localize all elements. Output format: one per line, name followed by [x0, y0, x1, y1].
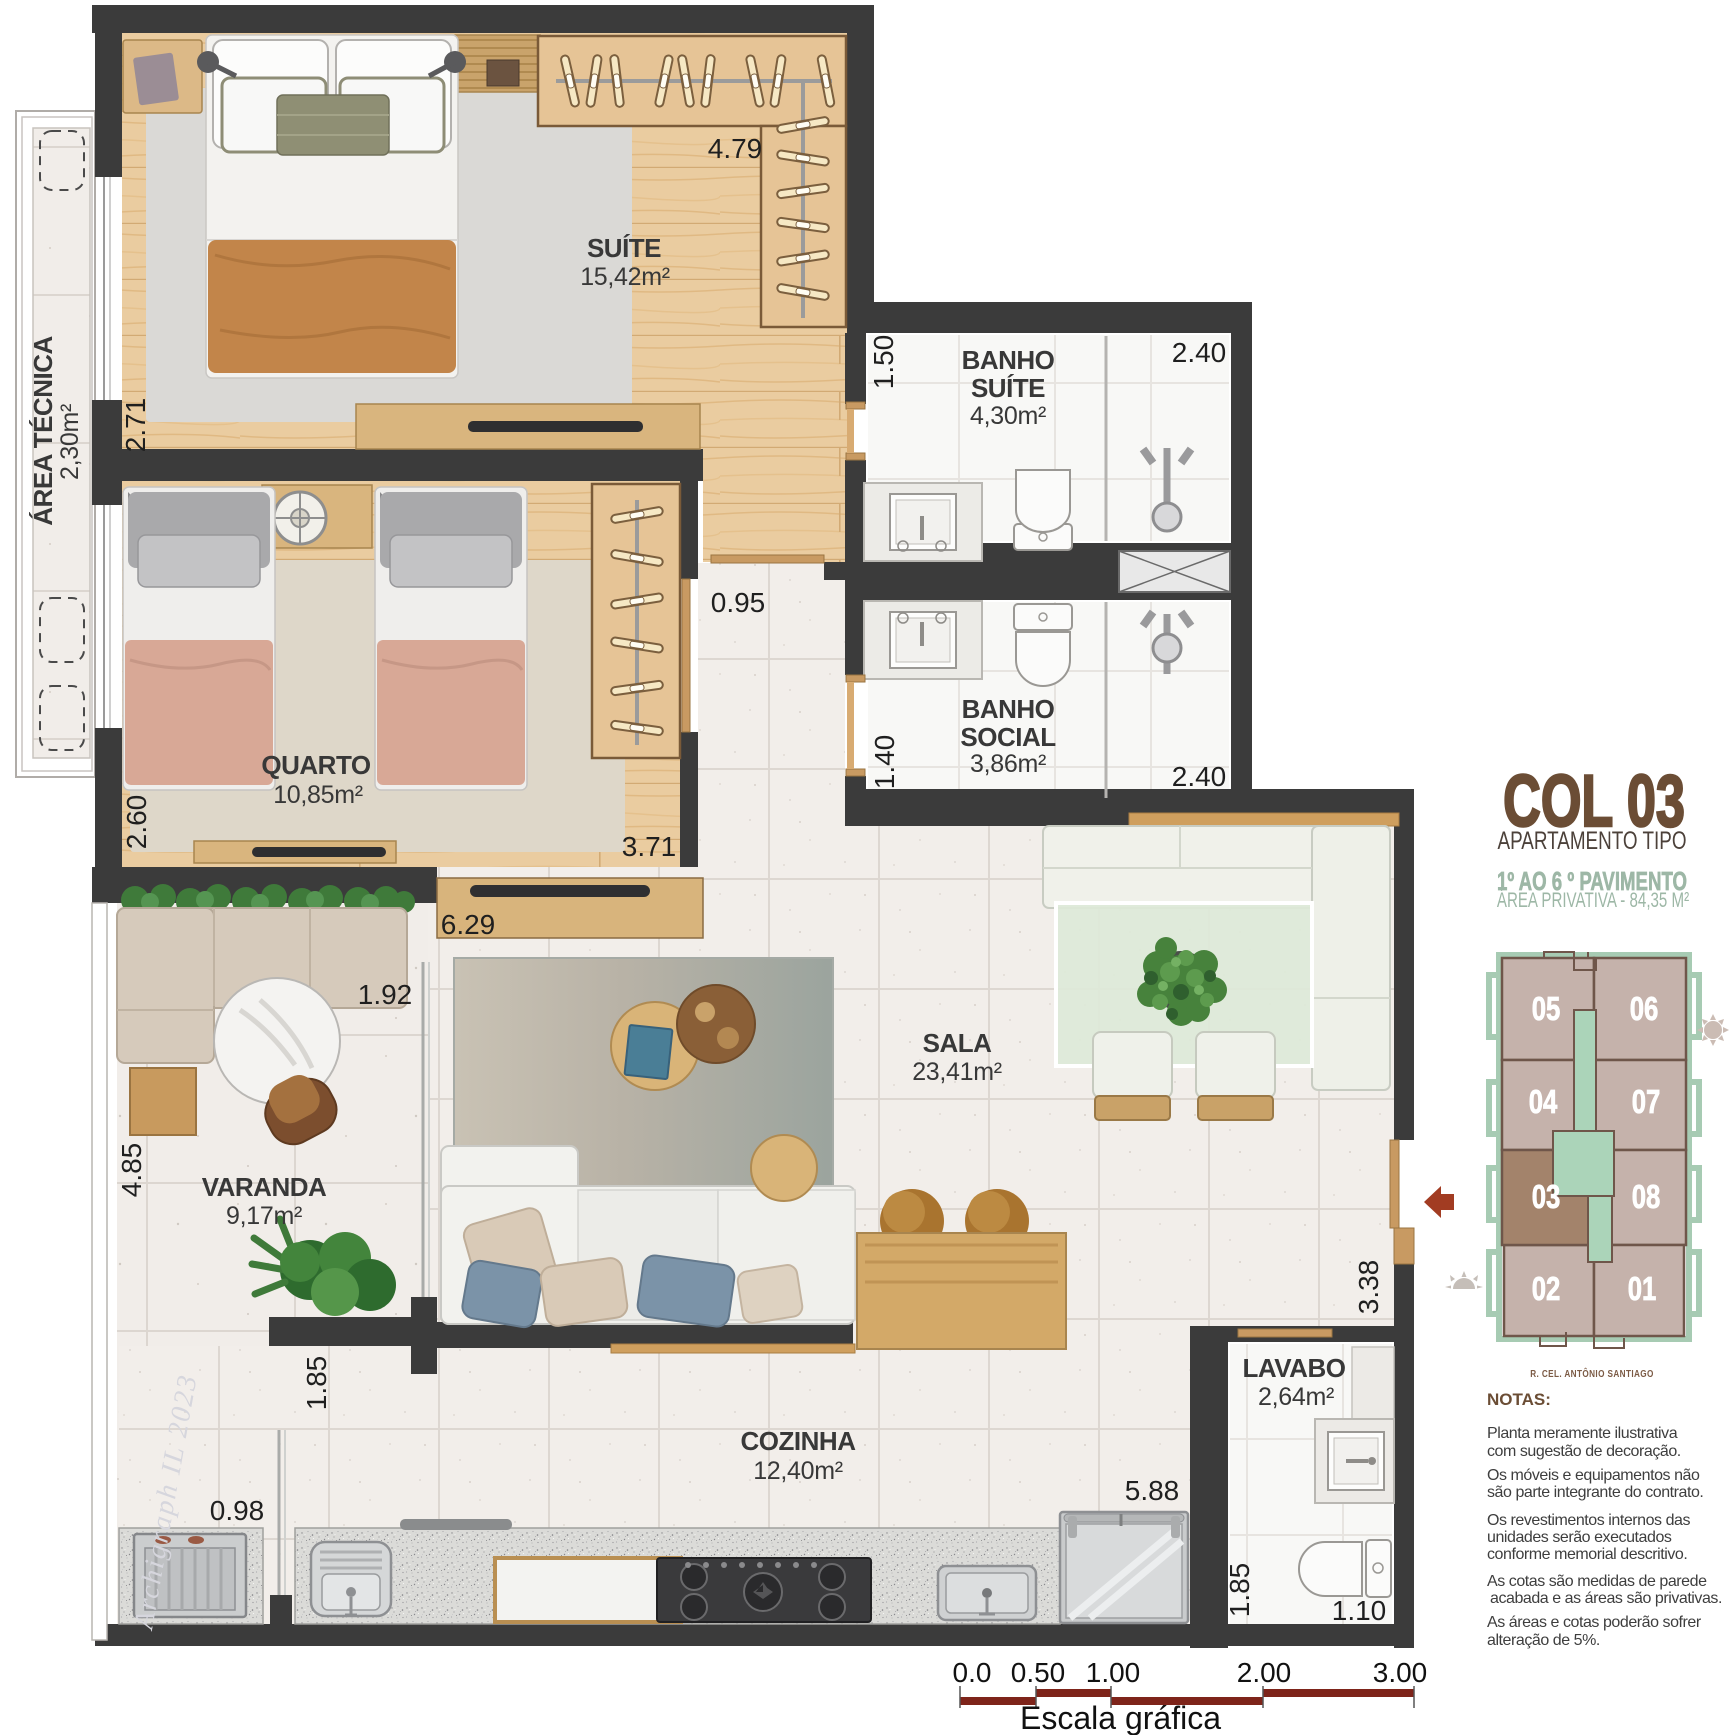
svg-text:Escala gráfica: Escala gráfica — [1020, 1700, 1221, 1735]
svg-text:2.40: 2.40 — [1172, 761, 1227, 792]
svg-text:0.50: 0.50 — [1011, 1657, 1066, 1688]
svg-text:03: 03 — [1532, 1179, 1561, 1216]
svg-text:acabada e as áreas são privati: acabada e as áreas são privativas. — [1490, 1590, 1722, 1607]
svg-text:APARTAMENTO TIPO: APARTAMENTO TIPO — [1497, 826, 1686, 854]
svg-text:0.0: 0.0 — [953, 1657, 992, 1688]
svg-text:VARANDA: VARANDA — [202, 1172, 327, 1202]
svg-text:1.92: 1.92 — [358, 979, 413, 1010]
svg-text:unidades serão executados: unidades serão executados — [1487, 1529, 1672, 1546]
svg-text:Os móveis e equipamentos não: Os móveis e equipamentos não — [1487, 1467, 1700, 1484]
svg-text:08: 08 — [1632, 1179, 1661, 1216]
svg-text:SUÍTE: SUÍTE — [971, 373, 1045, 403]
svg-text:9,17m²: 9,17m² — [226, 1202, 302, 1230]
svg-text:05: 05 — [1532, 991, 1561, 1028]
svg-text:02: 02 — [1532, 1271, 1561, 1308]
svg-text:são parte integrante do contra: são parte integrante do contrato. — [1487, 1484, 1703, 1501]
svg-text:Os revestimentos internos das: Os revestimentos internos das — [1487, 1512, 1690, 1529]
svg-text:2.60: 2.60 — [121, 795, 152, 850]
svg-text:0.98: 0.98 — [210, 1495, 265, 1526]
svg-text:1.10: 1.10 — [1332, 1595, 1387, 1626]
svg-text:R. CEL. ANTÔNIO SANTIAGO: R. CEL. ANTÔNIO SANTIAGO — [1530, 1367, 1654, 1379]
svg-text:QUARTO: QUARTO — [261, 750, 370, 780]
svg-text:01: 01 — [1628, 1271, 1657, 1308]
svg-text:5.88: 5.88 — [1125, 1475, 1180, 1506]
svg-text:As áreas e cotas poderão sofre: As áreas e cotas poderão sofrer — [1487, 1614, 1702, 1631]
svg-text:4.79: 4.79 — [708, 133, 763, 164]
svg-text:06: 06 — [1630, 991, 1659, 1028]
svg-text:1.00: 1.00 — [1086, 1657, 1141, 1688]
svg-text:COZINHA: COZINHA — [741, 1426, 857, 1456]
svg-text:alteração de 5%.: alteração de 5%. — [1487, 1632, 1600, 1649]
svg-text:2,64m²: 2,64m² — [1258, 1383, 1334, 1411]
svg-text:BANHO: BANHO — [962, 694, 1055, 724]
svg-text:SOCIAL: SOCIAL — [960, 722, 1056, 752]
svg-text:6.29: 6.29 — [441, 909, 496, 940]
svg-text:1.50: 1.50 — [868, 335, 899, 390]
svg-text:As cotas são medidas de parede: As cotas são medidas de parede — [1487, 1573, 1707, 1590]
svg-text:0.95: 0.95 — [711, 587, 766, 618]
svg-text:4.85: 4.85 — [116, 1143, 147, 1198]
svg-text:NOTAS:: NOTAS: — [1487, 1390, 1551, 1409]
svg-text:SALA: SALA — [923, 1028, 993, 1058]
svg-text:3,86m²: 3,86m² — [970, 750, 1046, 778]
svg-text:ÁREA TÉCNICA: ÁREA TÉCNICA — [28, 336, 58, 526]
svg-text:2,30m²: 2,30m² — [56, 404, 84, 480]
svg-text:SUÍTE: SUÍTE — [587, 233, 661, 263]
svg-text:2.71: 2.71 — [120, 398, 151, 453]
svg-text:04: 04 — [1529, 1084, 1558, 1121]
svg-text:15,42m²: 15,42m² — [580, 263, 670, 291]
svg-text:10,85m²: 10,85m² — [273, 781, 363, 809]
svg-text:2.40: 2.40 — [1172, 337, 1227, 368]
svg-text:1.85: 1.85 — [1224, 1563, 1255, 1618]
svg-text:BANHO: BANHO — [962, 345, 1055, 375]
svg-text:2.00: 2.00 — [1237, 1657, 1292, 1688]
svg-text:1.40: 1.40 — [869, 735, 900, 790]
svg-text:3.71: 3.71 — [622, 831, 677, 862]
svg-text:ÁREA PRIVATIVA - 84,35 M²: ÁREA PRIVATIVA - 84,35 M² — [1497, 887, 1689, 911]
svg-text:3.38: 3.38 — [1353, 1260, 1384, 1315]
svg-text:23,41m²: 23,41m² — [912, 1058, 1002, 1086]
svg-text:07: 07 — [1632, 1084, 1661, 1121]
svg-text:LAVABO: LAVABO — [1243, 1353, 1346, 1383]
svg-text:Planta meramente ilustrativa: Planta meramente ilustrativa — [1487, 1425, 1678, 1442]
svg-text:3.00: 3.00 — [1373, 1657, 1428, 1688]
svg-text:12,40m²: 12,40m² — [753, 1457, 843, 1485]
svg-text:conforme memorial descritivo.: conforme memorial descritivo. — [1487, 1546, 1687, 1563]
svg-text:1.85: 1.85 — [301, 1356, 332, 1411]
svg-text:4,30m²: 4,30m² — [970, 402, 1046, 430]
svg-text:com sugestão de decoração.: com sugestão de decoração. — [1487, 1443, 1681, 1460]
